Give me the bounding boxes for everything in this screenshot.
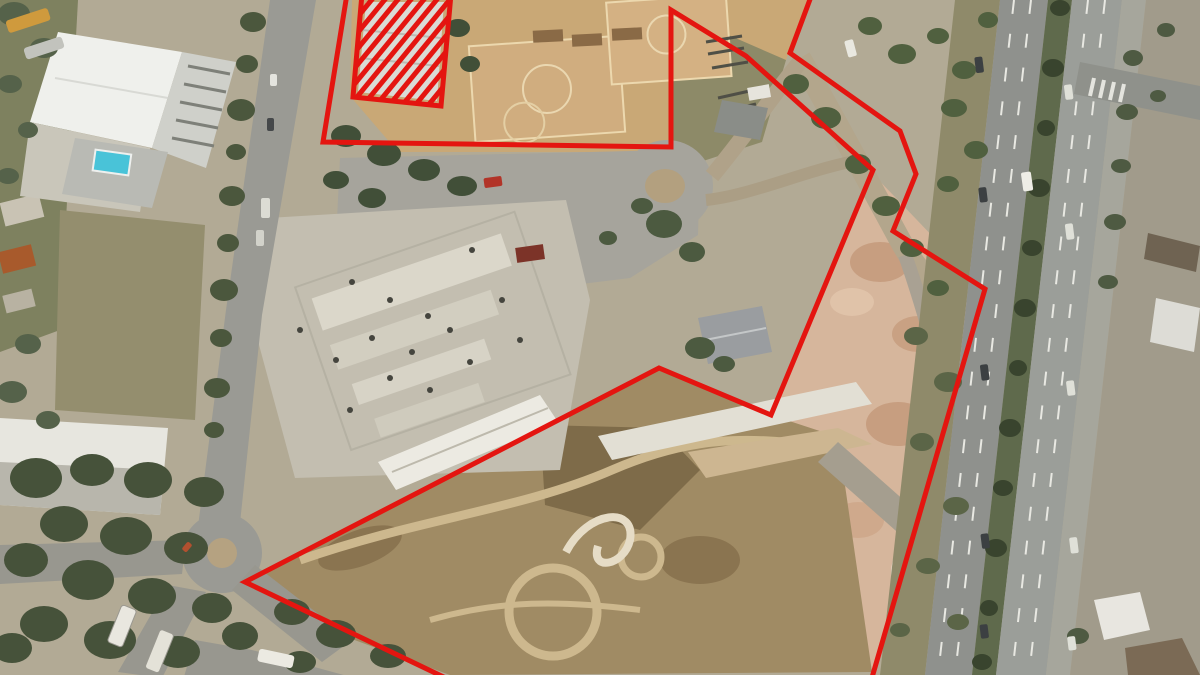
dirt-patch: [660, 536, 740, 584]
car: [979, 624, 989, 639]
left-scrub-field: [55, 210, 205, 420]
truck: [256, 230, 264, 246]
car: [267, 118, 274, 131]
aerial-photo-base: [0, 0, 1200, 675]
car: [270, 74, 277, 86]
roundabout-island: [207, 538, 237, 568]
truck: [261, 198, 270, 218]
swimming-pool: [93, 150, 132, 176]
car: [1067, 636, 1077, 651]
annotated-aerial-map: [0, 0, 1200, 675]
cul-de-sac-island: [645, 169, 685, 203]
